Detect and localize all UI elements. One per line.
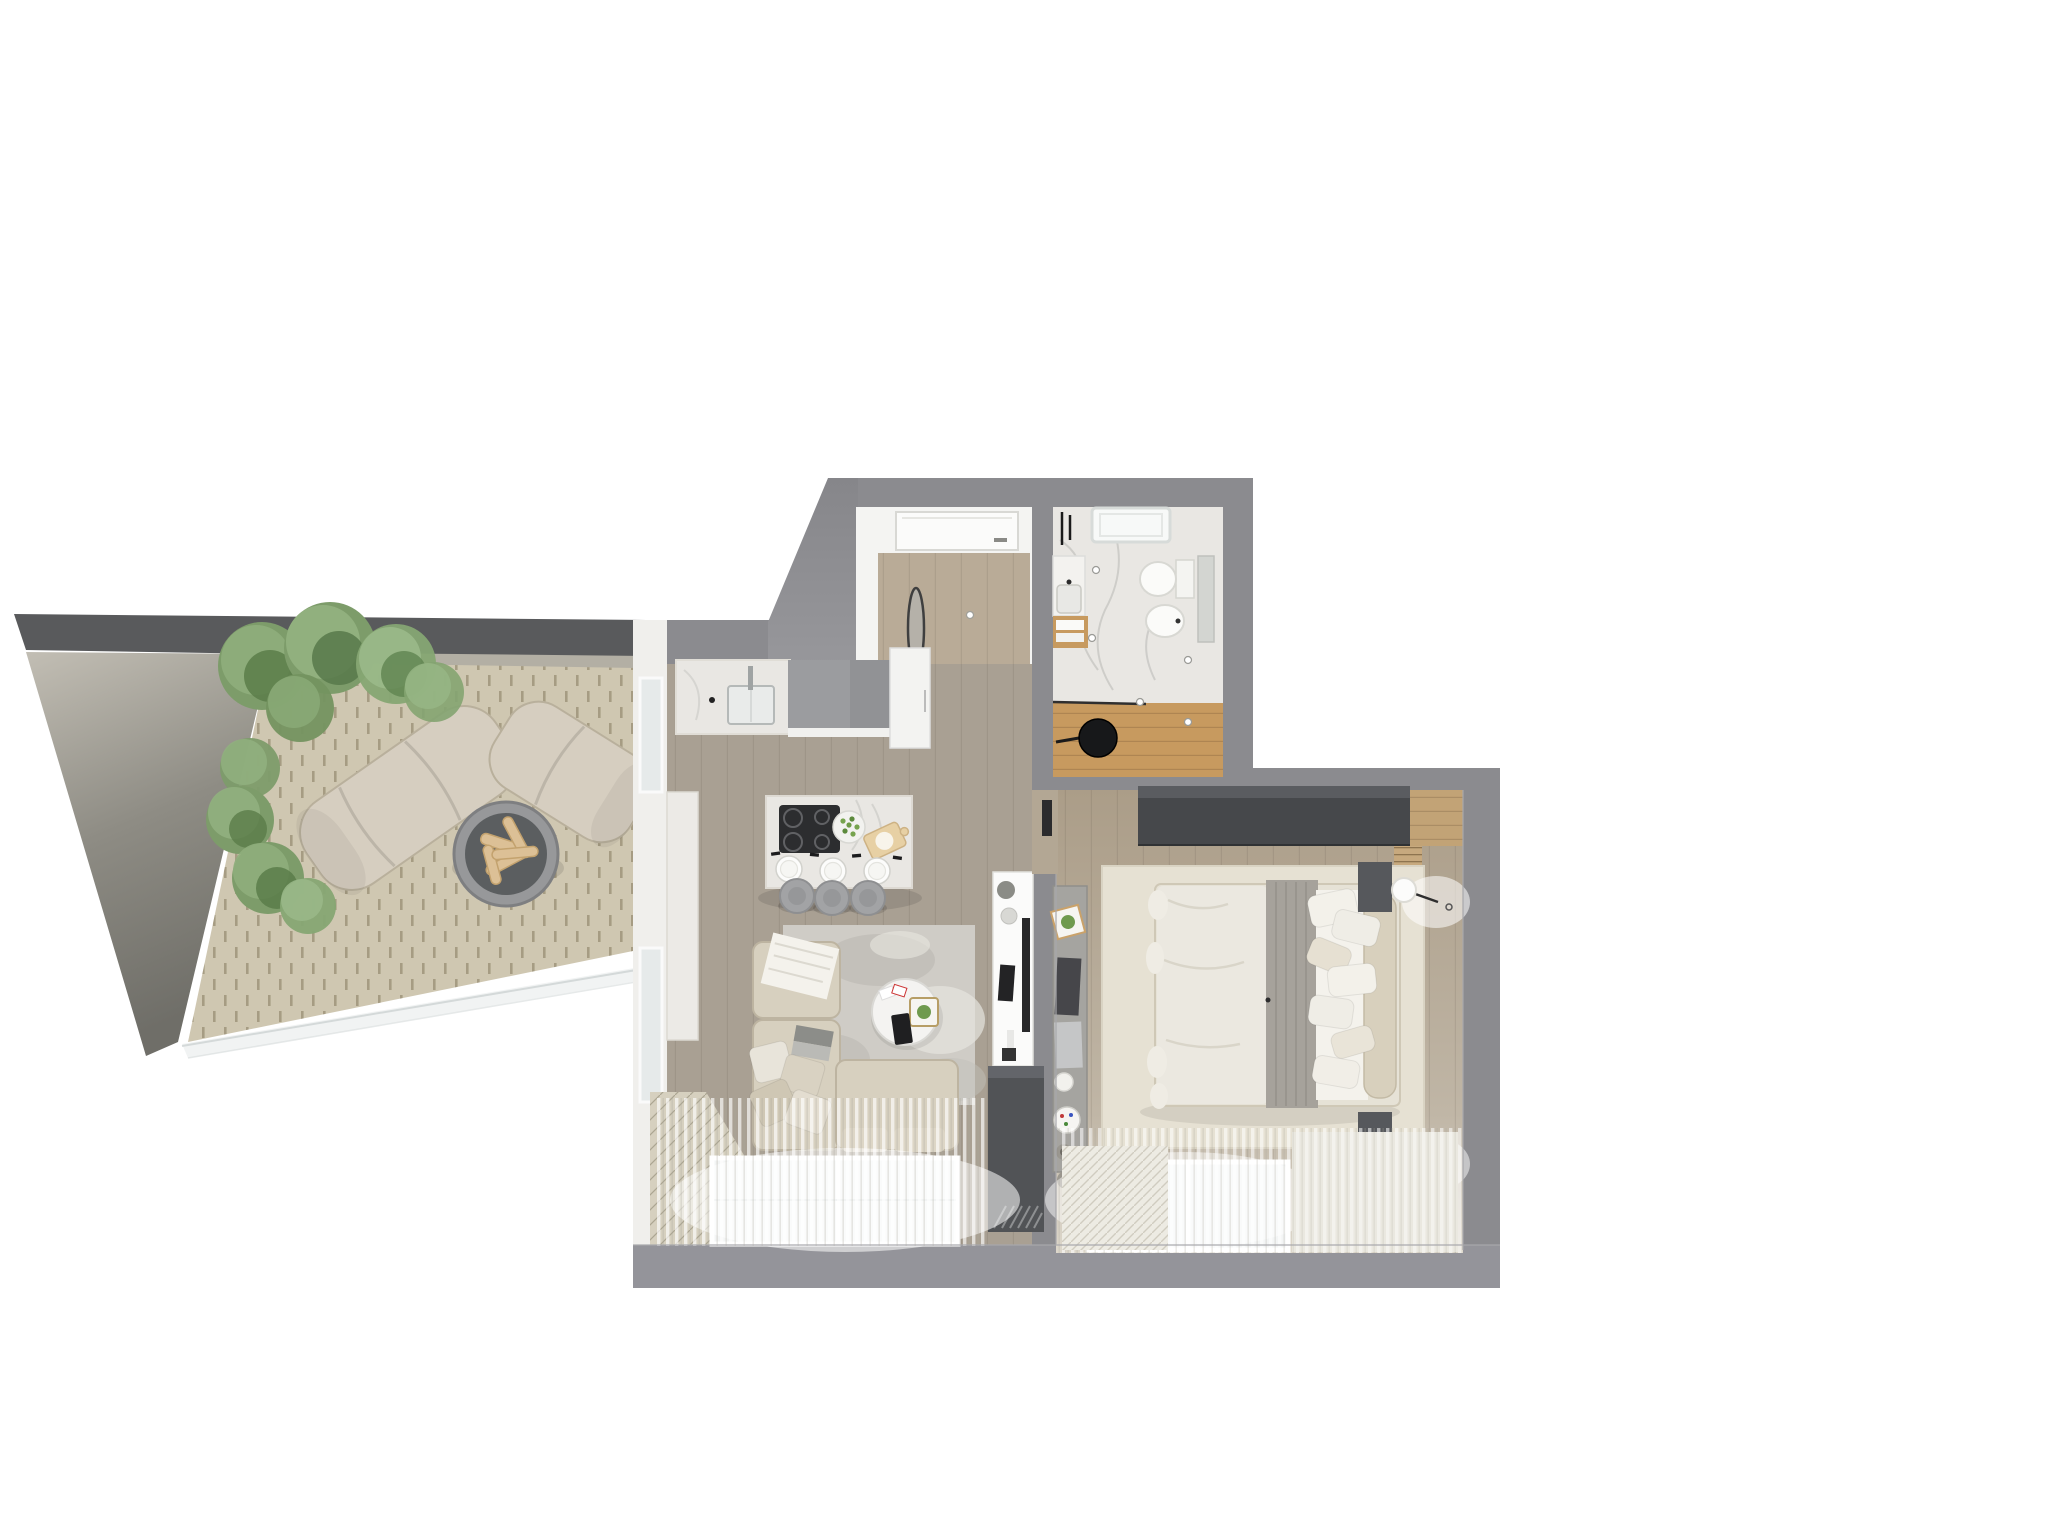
nightstand — [1358, 862, 1392, 912]
spotlight-icon — [967, 612, 974, 619]
plant-icon — [266, 674, 334, 742]
salad-bowl — [833, 811, 865, 843]
floor-plan-render — [0, 0, 2048, 1536]
plant-icon — [280, 878, 336, 934]
bathroom — [1053, 507, 1223, 777]
towel-shelf — [1053, 616, 1088, 648]
duvet-fold — [1147, 1046, 1167, 1078]
tray-plant-icon — [917, 1005, 931, 1019]
bedroom — [1032, 786, 1470, 1253]
west-window — [640, 678, 662, 792]
vase-icon — [997, 881, 1015, 899]
media-box-icon — [1002, 1048, 1016, 1061]
duvet — [1157, 886, 1268, 1104]
bar-stools — [778, 879, 887, 915]
west-window — [640, 948, 662, 1102]
bed — [1140, 880, 1400, 1126]
white-sideboard — [667, 792, 698, 1040]
table-lamp-icon — [1001, 908, 1017, 924]
duvet-fold — [1150, 1083, 1168, 1109]
duvet-fold — [1148, 890, 1168, 920]
doorway-object — [1042, 800, 1052, 836]
screenshot-stage — [0, 0, 2048, 1536]
tv-console — [993, 872, 1033, 1066]
speaker-icon — [998, 965, 1015, 1002]
bidet — [1146, 605, 1184, 637]
kitchen-island — [758, 796, 922, 915]
monitor-icon — [1054, 957, 1081, 1015]
bottle-icon — [1055, 1073, 1073, 1091]
plant-icon — [404, 662, 464, 722]
vanity-sink — [1053, 556, 1085, 616]
kitchen-faucet-icon — [748, 666, 753, 690]
mirror-panel — [1198, 556, 1214, 642]
living-area — [633, 620, 1044, 1252]
duvet-fold — [1146, 942, 1164, 974]
laptop-icon — [1054, 1022, 1083, 1069]
kitchen-counter — [676, 648, 930, 748]
toilet — [1140, 560, 1194, 598]
tv-icon — [1022, 918, 1030, 1032]
door-handle-icon — [994, 538, 1007, 542]
wardrobe — [1138, 786, 1410, 846]
cooktop — [779, 805, 840, 853]
living-curtains — [655, 1098, 985, 1246]
